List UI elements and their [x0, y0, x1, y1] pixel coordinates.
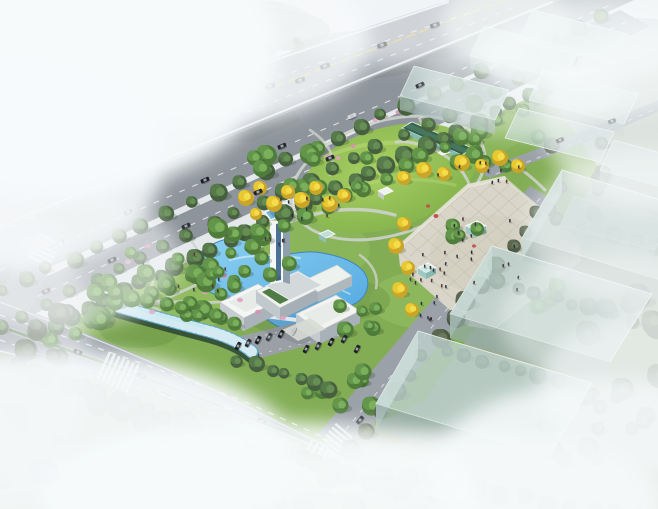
aerial-rendering — [0, 0, 658, 509]
rendering-canvas — [0, 0, 658, 509]
